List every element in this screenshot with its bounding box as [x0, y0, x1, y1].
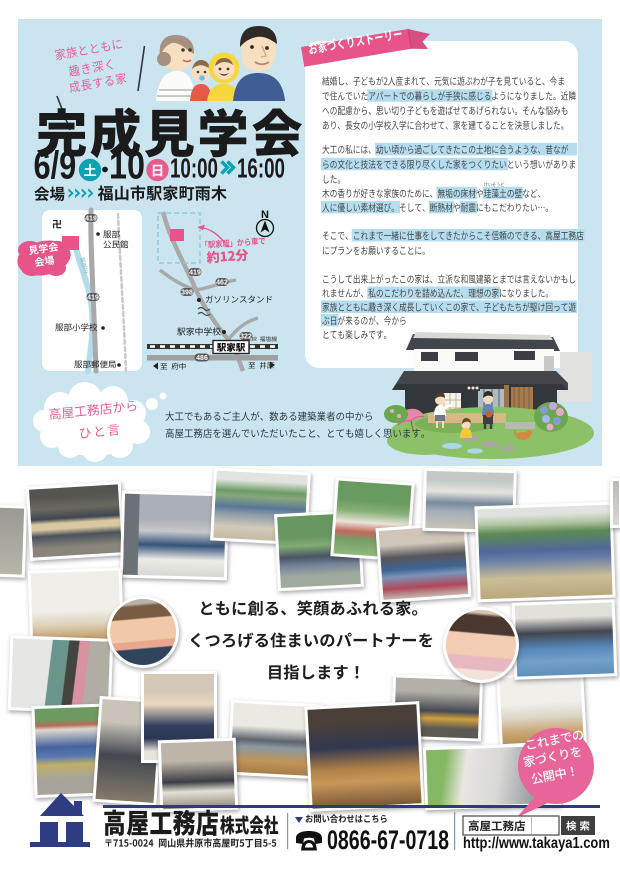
svg-text:16:00: 16:00	[237, 153, 285, 185]
svg-text:322: 322	[240, 334, 252, 341]
svg-text:419: 419	[189, 270, 201, 277]
svg-text:462: 462	[216, 280, 228, 287]
svg-text:419: 419	[85, 216, 97, 223]
svg-text:0866-67-0718: 0866-67-0718	[327, 825, 449, 855]
svg-text:398: 398	[181, 290, 193, 297]
svg-text:http://www.takaya1.com: http://www.takaya1.com	[463, 835, 610, 852]
svg-text:486: 486	[196, 355, 208, 362]
svg-text:419: 419	[87, 295, 99, 302]
svg-text:10:00: 10:00	[170, 153, 218, 185]
svg-text:6/9: 6/9	[34, 144, 77, 187]
svg-text:10: 10	[109, 144, 145, 187]
